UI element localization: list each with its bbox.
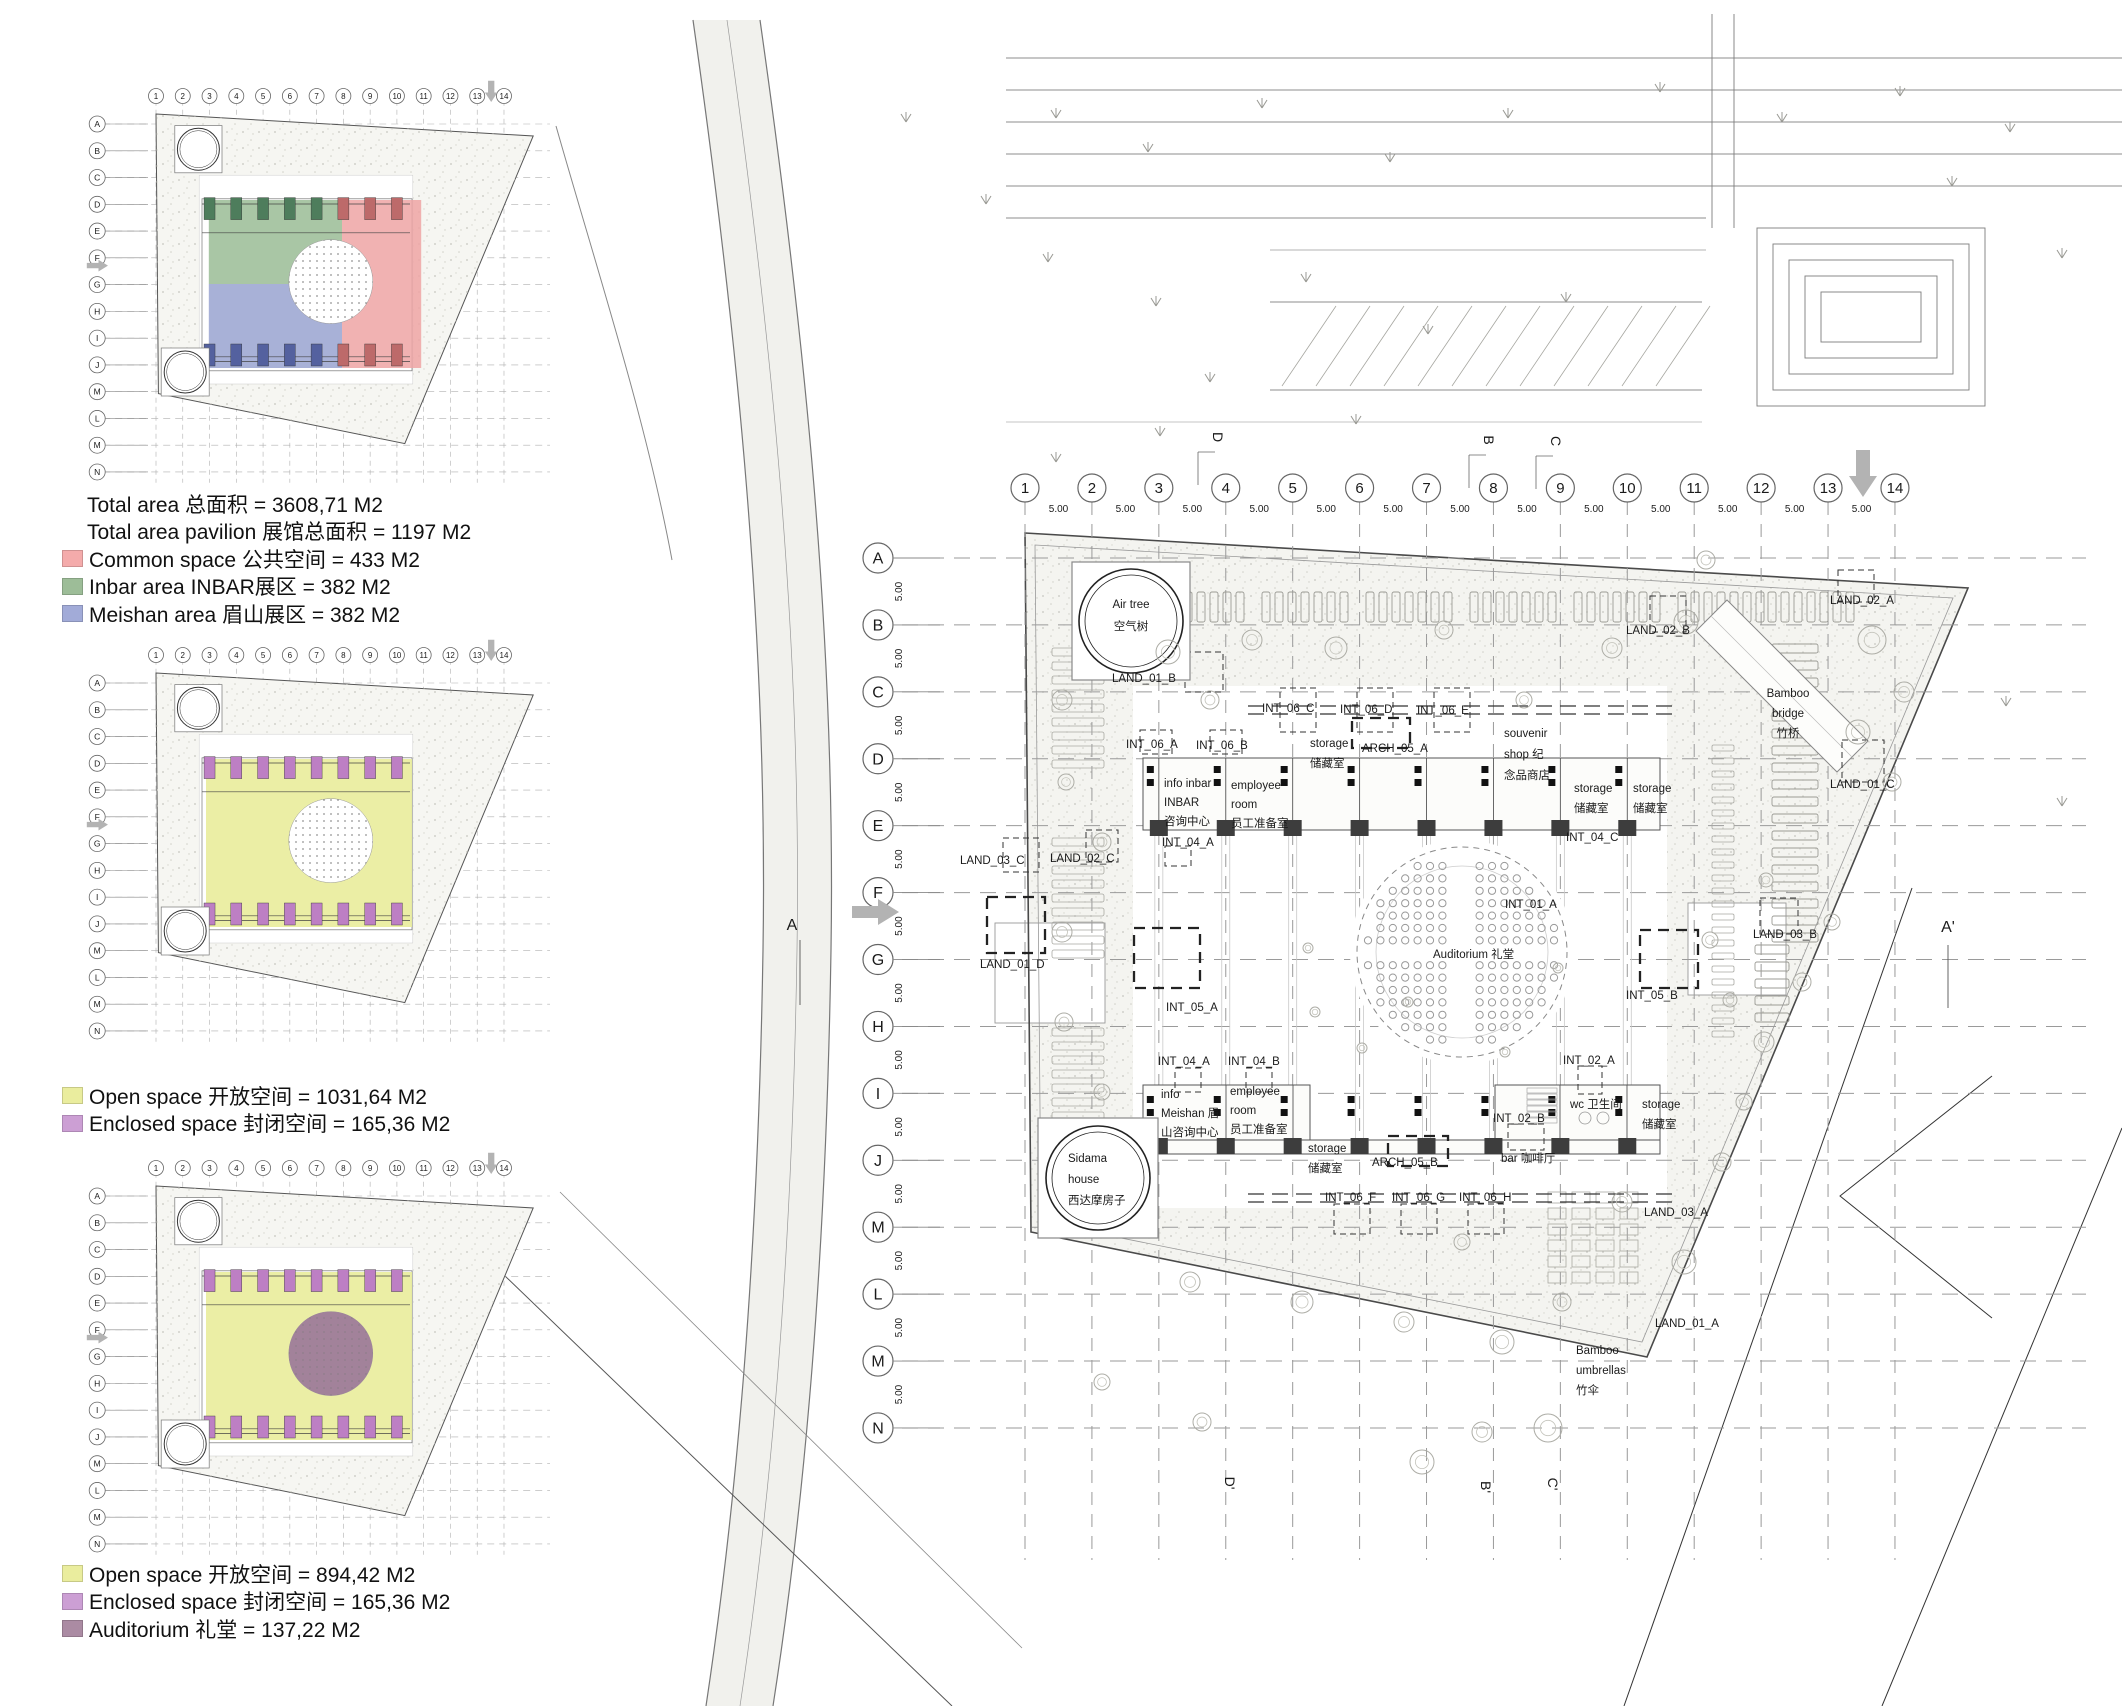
auditorium-swatch bbox=[62, 1620, 83, 1637]
grid-row-label: B bbox=[873, 617, 884, 634]
meishan-area-swatch bbox=[62, 605, 83, 622]
mini-grid-row-label: L bbox=[95, 1485, 100, 1495]
plan-label: storage bbox=[1642, 1099, 1680, 1111]
mini-grid-row-label: I bbox=[96, 1405, 98, 1415]
legend-text: Meishan area 眉山展区 = 382 M2 bbox=[89, 599, 400, 629]
mini-grid-column-label: 13 bbox=[473, 651, 482, 660]
mini-grid-column-label: 2 bbox=[181, 651, 186, 660]
enclosed-space-swatch bbox=[62, 1593, 83, 1610]
mini-grid-row-label: E bbox=[94, 1298, 100, 1308]
mini-grid-column-label: 1 bbox=[154, 651, 159, 660]
mini-grid-column-label: 11 bbox=[420, 1164, 429, 1173]
grid-spacing-label: 5.00 bbox=[1316, 504, 1336, 515]
grid-spacing-label: 5.00 bbox=[894, 648, 905, 668]
section-marker: C bbox=[1548, 436, 1564, 446]
mini-grid-row-label: A bbox=[94, 1191, 100, 1201]
grid-spacing-label: 5.00 bbox=[1250, 504, 1270, 515]
plan-label: LAND_01_B bbox=[1112, 673, 1176, 685]
plan-label: bridge bbox=[1772, 708, 1804, 720]
legend-row: Meishan area 眉山展区 = 382 M2 bbox=[62, 600, 471, 628]
open-space-swatch bbox=[62, 1087, 83, 1104]
grid-spacing-label: 5.00 bbox=[894, 1050, 905, 1070]
mini-grid-column-label: 12 bbox=[446, 1164, 455, 1173]
mini-grid-row-label: M bbox=[94, 999, 101, 1009]
mini-grid-row-label: H bbox=[94, 1378, 100, 1388]
mini-grid-column-label: 3 bbox=[207, 651, 212, 660]
plan-label: umbrellas bbox=[1576, 1365, 1626, 1377]
plan-label: LAND_01_C bbox=[1830, 779, 1895, 791]
plan-label: 员工准备室 bbox=[1231, 816, 1289, 830]
legend-open-enclosed-auditorium: Open space 开放空间 = 894,42 M2 Enclosed spa… bbox=[62, 1560, 450, 1643]
plan-label: INT_02_A bbox=[1563, 1055, 1615, 1067]
legend-text: Enclosed space 封闭空间 = 165,36 M2 bbox=[89, 1108, 450, 1138]
legend-row: Open space 开放空间 = 894,42 M2 bbox=[62, 1560, 450, 1588]
plan-label: INT_04_A bbox=[1158, 1056, 1210, 1068]
plan-label: storage bbox=[1574, 783, 1612, 795]
mini-grid-row-label: D bbox=[94, 199, 100, 209]
mini-grid-row-label: B bbox=[94, 705, 100, 715]
plan-label: storage bbox=[1633, 783, 1671, 795]
grid-column-label: 10 bbox=[1619, 480, 1636, 497]
grid-spacing-label: 5.00 bbox=[894, 983, 905, 1003]
plan-label: LAND_02_B bbox=[1626, 625, 1690, 637]
mini-grid-column-label: 12 bbox=[446, 651, 455, 660]
plan-label: 员工准备室 bbox=[1230, 1122, 1288, 1136]
plan-label: LAND_03_B bbox=[1753, 929, 1817, 941]
mini-grid-column-label: 10 bbox=[392, 1164, 401, 1173]
plan-label: INT_06_A bbox=[1126, 739, 1178, 751]
plan-label: bar 咖啡厅 bbox=[1501, 1151, 1555, 1165]
plan-label: Meishan 眉 bbox=[1161, 1108, 1219, 1120]
plan-label: INBAR bbox=[1164, 797, 1199, 809]
mini-grid-row-label: L bbox=[95, 413, 100, 423]
grid-column-label: 7 bbox=[1422, 480, 1430, 497]
legend-row: Total area pavilion 展馆总面积 = 1197 M2 bbox=[62, 518, 471, 546]
common-space-swatch bbox=[62, 550, 83, 567]
plan-label: info inbar bbox=[1164, 778, 1211, 790]
section-marker: C' bbox=[1545, 1478, 1561, 1491]
plan-label: INT_06_E bbox=[1417, 705, 1469, 717]
plan-label: house bbox=[1068, 1174, 1099, 1186]
grid-column-label: 11 bbox=[1686, 480, 1702, 497]
legend-text: Total area pavilion 展馆总面积 = 1197 M2 bbox=[87, 516, 471, 546]
mini-grid-column-label: 7 bbox=[314, 92, 319, 101]
mini-grid-row-label: E bbox=[94, 226, 100, 236]
mini-grid-column-label: 13 bbox=[473, 1164, 482, 1173]
grid-row-label: M bbox=[871, 1354, 884, 1371]
legend-text: Open space 开放空间 = 1031,64 M2 bbox=[89, 1081, 427, 1111]
plan-label: Sidama bbox=[1068, 1153, 1108, 1165]
mini-grid-column-label: 11 bbox=[420, 651, 429, 660]
mini-grid-row-label: I bbox=[96, 333, 98, 343]
grid-spacing-label: 5.00 bbox=[894, 1384, 905, 1404]
mini-grid-row-label: J bbox=[95, 1432, 99, 1442]
mini-plan-1: 1234567891011121314ABCDEFGHIJMLMN bbox=[87, 81, 550, 483]
plan-label: INT_02_B bbox=[1493, 1113, 1545, 1125]
grid-spacing-label: 5.00 bbox=[894, 782, 905, 802]
grid-column-label: 12 bbox=[1753, 480, 1770, 497]
grid-column-label: 3 bbox=[1155, 480, 1163, 497]
plan-label: 竹伞 bbox=[1576, 1383, 1599, 1397]
grid-row-label: A bbox=[873, 551, 884, 568]
mini-grid-row-label: J bbox=[95, 360, 99, 370]
legend-open-enclosed: Open space 开放空间 = 1031,64 M2 Enclosed sp… bbox=[62, 1082, 450, 1137]
enclosed-space-swatch bbox=[62, 1115, 83, 1132]
grid-spacing-label: 5.00 bbox=[1718, 504, 1738, 515]
legend-text: Inbar area INBAR展区 = 382 M2 bbox=[89, 571, 391, 601]
plan-label: INT_04_C bbox=[1566, 832, 1618, 844]
legend-row: Total area 总面积 = 3608,71 M2 bbox=[62, 490, 471, 518]
grid-spacing-label: 5.00 bbox=[1450, 504, 1470, 515]
terrain-lines bbox=[1006, 14, 2122, 422]
grid-row-label: I bbox=[876, 1086, 880, 1103]
grid-row-label: J bbox=[874, 1153, 882, 1170]
plan-label: storage bbox=[1310, 738, 1348, 750]
mini-grid-column-label: 10 bbox=[392, 651, 401, 660]
legend-total-areas: Total area 总面积 = 3608,71 M2 Total area p… bbox=[62, 490, 471, 628]
legend-row: Open space 开放空间 = 1031,64 M2 bbox=[62, 1082, 450, 1110]
grid-spacing-label: 5.00 bbox=[1584, 504, 1604, 515]
grid-column-label: 13 bbox=[1820, 480, 1837, 497]
grid-spacing-label: 5.00 bbox=[894, 916, 905, 936]
mini-grid-row-label: M bbox=[94, 440, 101, 450]
plan-label: INT_06_D bbox=[1340, 704, 1392, 716]
grid-spacing-label: 5.00 bbox=[1383, 504, 1403, 515]
mini-grid-column-label: 8 bbox=[341, 92, 346, 101]
mini-grid-column-label: 6 bbox=[288, 651, 293, 660]
plan-label: LAND_02_C bbox=[1050, 853, 1115, 865]
mini-grid-column-label: 3 bbox=[207, 92, 212, 101]
plan-label: INT_01_A bbox=[1505, 899, 1557, 911]
swatch-spacer bbox=[62, 496, 81, 511]
mini-grid-column-label: 7 bbox=[314, 1164, 319, 1173]
mini-grid-row-label: N bbox=[94, 1539, 100, 1549]
grid-spacing-label: 5.00 bbox=[894, 715, 905, 735]
grid-spacing-label: 5.00 bbox=[894, 1184, 905, 1204]
mini-grid-column-label: 9 bbox=[368, 92, 373, 101]
plan-label: employee bbox=[1230, 1086, 1280, 1098]
mini-grid-column-label: 4 bbox=[234, 1164, 239, 1173]
plan-label: Air tree bbox=[1112, 599, 1149, 611]
mini-grid-row-label: G bbox=[94, 839, 101, 849]
legend-text: Common space 公共空间 = 433 M2 bbox=[89, 544, 420, 574]
mini-grid-row-label: C bbox=[94, 732, 100, 742]
plan-label: ARCH_05_B bbox=[1372, 1157, 1438, 1169]
plan-label: info bbox=[1161, 1089, 1180, 1101]
section-marker: D' bbox=[1222, 1477, 1238, 1490]
plan-label: Bamboo bbox=[1576, 1345, 1619, 1357]
plan-label: INT_06_G bbox=[1392, 1192, 1445, 1204]
legend-text: Total area 总面积 = 3608,71 M2 bbox=[87, 489, 383, 519]
plan-label: 竹桥 bbox=[1777, 726, 1800, 740]
mini-grid-row-label: I bbox=[96, 892, 98, 902]
inbar-area-swatch bbox=[62, 578, 83, 595]
grid-row-label: G bbox=[872, 952, 884, 969]
grid-row-label: L bbox=[874, 1287, 883, 1304]
plan-label: room bbox=[1231, 799, 1257, 811]
grid-spacing-label: 5.00 bbox=[894, 1117, 905, 1137]
plan-label: 念品商店 bbox=[1504, 768, 1550, 782]
section-marker: B' bbox=[1478, 1481, 1494, 1493]
architectural-plan-canvas: 15.0025.0035.0045.0055.0065.0075.0085.00… bbox=[0, 0, 2122, 1706]
plan-label: wc 卫生间 bbox=[1569, 1097, 1622, 1111]
plan-label: 储藏室 bbox=[1310, 756, 1345, 770]
mini-grid-row-label: G bbox=[94, 280, 101, 290]
plan-label: Auditorium 礼堂 bbox=[1433, 947, 1514, 961]
mini-grid-row-label: M bbox=[94, 387, 101, 397]
plan-label: shop 纪 bbox=[1504, 748, 1544, 761]
mini-grid-row-label: M bbox=[94, 946, 101, 956]
mini-plan-2: 1234567891011121314ABCDEFGHIJMLMN bbox=[87, 640, 550, 1042]
grid-row-label: C bbox=[872, 684, 884, 701]
mini-grid-row-label: L bbox=[95, 972, 100, 982]
plan-label: INT_06_F bbox=[1325, 1192, 1376, 1204]
legend-text: Enclosed space 封闭空间 = 165,36 M2 bbox=[89, 1586, 450, 1616]
grid-column-label: 4 bbox=[1222, 480, 1230, 497]
mini-grid-column-label: 9 bbox=[368, 651, 373, 660]
mini-grid-column-label: 2 bbox=[181, 1164, 186, 1173]
grid-spacing-label: 5.00 bbox=[1049, 504, 1069, 515]
plan-label: LAND_01_D bbox=[980, 959, 1045, 971]
plan-label: ARCH_05_A bbox=[1362, 743, 1428, 755]
plan-label: 咨询中心 bbox=[1164, 814, 1210, 828]
mini-plan-3: 1234567891011121314ABCDEFGHIJMLMN bbox=[87, 1153, 550, 1555]
plan-label: souvenir bbox=[1504, 728, 1548, 740]
plan-label: 空气树 bbox=[1114, 619, 1149, 633]
mini-grid-column-label: 6 bbox=[288, 92, 293, 101]
mini-grid-row-label: H bbox=[94, 306, 100, 316]
mini-grid-row-label: H bbox=[94, 865, 100, 875]
plan-label: room bbox=[1230, 1105, 1256, 1117]
mini-grid-column-label: 3 bbox=[207, 1164, 212, 1173]
legend-text: Open space 开放空间 = 894,42 M2 bbox=[89, 1559, 415, 1589]
grid-row-label: M bbox=[871, 1220, 884, 1237]
mini-grid-column-label: 8 bbox=[341, 651, 346, 660]
mini-grid-row-label: N bbox=[94, 1026, 100, 1036]
mini-grid-column-label: 4 bbox=[234, 92, 239, 101]
plan-label: INT_04_A bbox=[1162, 837, 1214, 849]
grid-spacing-label: 5.00 bbox=[1517, 504, 1537, 515]
mini-grid-row-label: A bbox=[94, 119, 100, 129]
plan-label: INT_05_A bbox=[1166, 1002, 1218, 1014]
plan-label: INT_04_B bbox=[1228, 1056, 1280, 1068]
section-marker-a: A bbox=[787, 917, 798, 934]
mini-grid-column-label: 14 bbox=[500, 651, 509, 660]
grid-spacing-label: 5.00 bbox=[1183, 504, 1203, 515]
mini-grid-column-label: 10 bbox=[392, 92, 401, 101]
mini-grid-column-label: 9 bbox=[368, 1164, 373, 1173]
mini-grid-row-label: E bbox=[94, 785, 100, 795]
mini-grid-row-label: G bbox=[94, 1352, 101, 1362]
mini-grid-row-label: C bbox=[94, 1245, 100, 1255]
mini-grid-column-label: 5 bbox=[261, 92, 266, 101]
plan-label: LAND_01_A bbox=[1655, 1318, 1719, 1330]
plan-label: LAND_03_C bbox=[960, 855, 1025, 867]
plan-label: INT_06_H bbox=[1459, 1192, 1511, 1204]
grid-column-label: 14 bbox=[1887, 480, 1904, 497]
mini-grid-column-label: 2 bbox=[181, 92, 186, 101]
legend-row: Enclosed space 封闭空间 = 165,36 M2 bbox=[62, 1588, 450, 1616]
section-marker: B bbox=[1481, 435, 1497, 444]
plan-label: INT_06_B bbox=[1196, 740, 1248, 752]
grid-row-label: N bbox=[872, 1420, 884, 1437]
legend-row: Common space 公共空间 = 433 M2 bbox=[62, 545, 471, 573]
plan-label: LAND_02_A bbox=[1830, 595, 1894, 607]
legend-row: Auditorium 礼堂 = 137,22 M2 bbox=[62, 1615, 450, 1643]
grid-spacing-label: 5.00 bbox=[1116, 504, 1136, 515]
plan-label: 山咨询中心 bbox=[1161, 1125, 1219, 1139]
site-plan-drawing: 15.0025.0035.0045.0055.0065.0075.0085.00… bbox=[0, 0, 2122, 1706]
plan-label: Bamboo bbox=[1767, 688, 1810, 700]
mini-grid-column-label: 14 bbox=[500, 1164, 509, 1173]
legend-row: Enclosed space 封闭空间 = 165,36 M2 bbox=[62, 1110, 450, 1138]
mini-grid-column-label: 8 bbox=[341, 1164, 346, 1173]
grid-row-label: D bbox=[872, 751, 884, 768]
mini-grid-row-label: D bbox=[94, 758, 100, 768]
plan-label: INT_06_C bbox=[1262, 703, 1314, 715]
grid-column-label: 8 bbox=[1489, 480, 1497, 497]
mini-grid-row-label: C bbox=[94, 173, 100, 183]
grid-spacing-label: 5.00 bbox=[894, 1317, 905, 1337]
mini-grid-row-label: J bbox=[95, 919, 99, 929]
plan-label: 西达摩房子 bbox=[1068, 1193, 1126, 1207]
plan-label: 储藏室 bbox=[1642, 1117, 1677, 1131]
grid-column-label: 2 bbox=[1088, 480, 1096, 497]
grid-column-label: 1 bbox=[1021, 480, 1029, 497]
grid-column-label: 5 bbox=[1289, 480, 1297, 497]
grid-column-label: 6 bbox=[1355, 480, 1363, 497]
grid-spacing-label: 5.00 bbox=[894, 849, 905, 869]
grid-row-label: H bbox=[872, 1019, 884, 1036]
mini-grid-column-label: 13 bbox=[473, 92, 482, 101]
plan-label: 储藏室 bbox=[1308, 1161, 1343, 1175]
grid-spacing-label: 5.00 bbox=[894, 1251, 905, 1271]
plan-label: storage bbox=[1308, 1143, 1346, 1155]
mini-grid-row-label: A bbox=[94, 678, 100, 688]
mini-grid-row-label: M bbox=[94, 1459, 101, 1469]
mini-grid-column-label: 5 bbox=[261, 1164, 266, 1173]
plan-label: INT_05_B bbox=[1626, 990, 1678, 1002]
mini-grid-column-label: 1 bbox=[154, 1164, 159, 1173]
section-marker: D bbox=[1210, 432, 1226, 442]
open-space-swatch bbox=[62, 1565, 83, 1582]
plan-label: employee bbox=[1231, 780, 1281, 792]
mini-grid-row-label: M bbox=[94, 1512, 101, 1522]
legend-text: Auditorium 礼堂 = 137,22 M2 bbox=[89, 1614, 360, 1644]
grid-spacing-label: 5.00 bbox=[894, 581, 905, 601]
mini-grid-row-label: N bbox=[94, 467, 100, 477]
grid-column-label: 9 bbox=[1556, 480, 1564, 497]
mini-grid-row-label: D bbox=[94, 1271, 100, 1281]
legend-row: Inbar area INBAR展区 = 382 M2 bbox=[62, 573, 471, 601]
mini-grid-column-label: 7 bbox=[314, 651, 319, 660]
swatch-spacer bbox=[62, 524, 81, 539]
mini-grid-column-label: 1 bbox=[154, 92, 159, 101]
mini-grid-column-label: 12 bbox=[446, 92, 455, 101]
plan-label: 储藏室 bbox=[1633, 801, 1668, 815]
mini-grid-row-label: B bbox=[94, 146, 100, 156]
mini-grid-column-label: 5 bbox=[261, 651, 266, 660]
grid-spacing-label: 5.00 bbox=[1785, 504, 1805, 515]
grid-spacing-label: 5.00 bbox=[1651, 504, 1671, 515]
plan-label: 储藏室 bbox=[1574, 801, 1609, 815]
mini-grid-row-label: B bbox=[94, 1218, 100, 1228]
mini-grid-column-label: 4 bbox=[234, 651, 239, 660]
section-marker-a-prime: A' bbox=[1941, 919, 1955, 936]
plan-label: LAND_03_A bbox=[1644, 1207, 1708, 1219]
grid-row-label: E bbox=[873, 818, 884, 835]
mini-grid-column-label: 6 bbox=[288, 1164, 293, 1173]
mini-grid-column-label: 11 bbox=[420, 92, 429, 101]
mini-grid-column-label: 14 bbox=[500, 92, 509, 101]
grid-spacing-label: 5.00 bbox=[1852, 504, 1872, 515]
